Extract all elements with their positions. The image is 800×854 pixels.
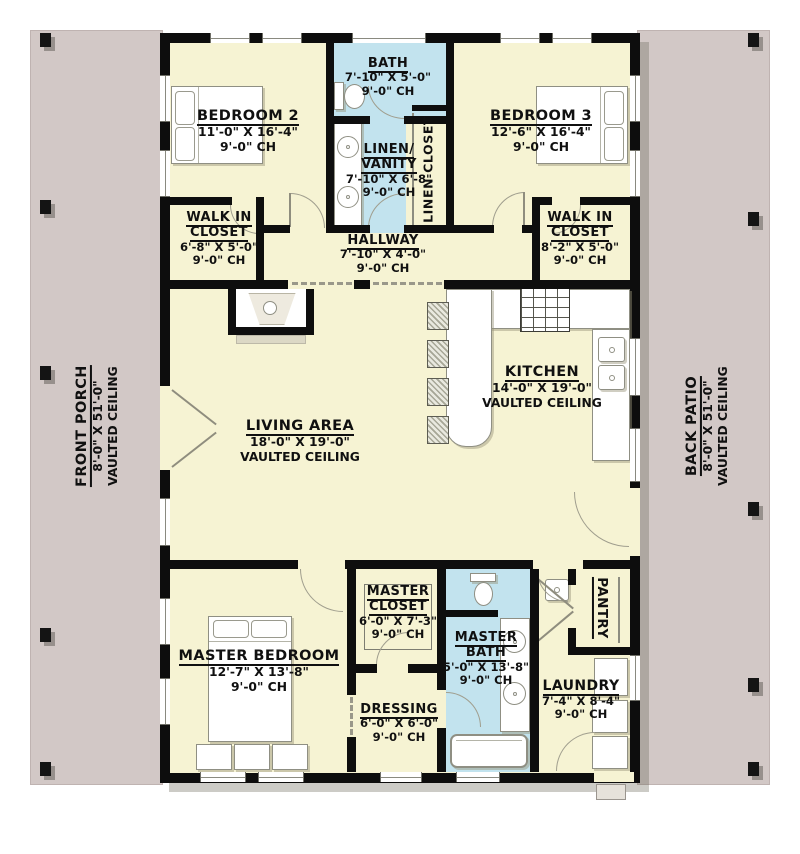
porch-post xyxy=(40,762,51,776)
bar-stool xyxy=(427,302,449,330)
label-wic-left: WALK IN CLOSET 6'-8" X 5'-0" 9'-0" CH xyxy=(166,210,272,268)
porch-post xyxy=(40,33,51,47)
label-bedroom2: BEDROOM 2 11'-0" X 16'-4" 9'-0" CH xyxy=(168,108,328,154)
label-living: LIVING AREA 18'-0" X 19'-0" VAULTED CEIL… xyxy=(205,418,395,464)
laundry-door-opening xyxy=(594,772,634,782)
window xyxy=(200,772,246,782)
bed-bench xyxy=(196,744,232,770)
fireplace xyxy=(236,289,306,327)
bed-bench xyxy=(234,744,270,770)
label-master-bedroom: MASTER BEDROOM 12'-7" X 13'-8" 9'-0" CH xyxy=(166,648,352,694)
wall xyxy=(170,280,288,289)
door-leaf xyxy=(289,193,291,227)
label-wic-right: WALK IN CLOSET 8'-2" X 5'-0" 9'-0" CH xyxy=(526,210,634,268)
wall xyxy=(568,569,576,585)
window xyxy=(210,33,250,43)
wall xyxy=(170,197,232,205)
hearth xyxy=(236,335,306,344)
patio-post xyxy=(748,762,759,776)
range-cooktop xyxy=(520,286,570,332)
window xyxy=(160,498,170,546)
window xyxy=(630,150,640,197)
window xyxy=(160,150,170,197)
label-dressing: DRESSING 6'-0" X 6'-0" 9'-0" CH xyxy=(350,702,448,745)
label-front-porch: FRONT PORCH 8'-0" X 51'-0" VAULTED CEILI… xyxy=(74,351,120,501)
porch-post xyxy=(40,200,51,214)
window xyxy=(500,33,540,43)
window xyxy=(630,428,640,482)
label-pantry: PANTRY xyxy=(593,566,609,650)
wall xyxy=(326,225,370,233)
label-master-bath: MASTER BATH 5'-0" X 13'-8" 9'-0" CH xyxy=(436,630,536,688)
window xyxy=(630,75,640,122)
wall xyxy=(580,197,630,205)
floor-plan: FRONT PORCH 8'-0" X 51'-0" VAULTED CEILI… xyxy=(0,0,800,854)
wall xyxy=(446,43,454,233)
wall xyxy=(444,280,630,289)
patio-post xyxy=(748,33,759,47)
label-bath: BATH 7'-10" X 5'-0" 9'-0" CH xyxy=(330,56,446,99)
back-door-opening xyxy=(630,488,640,556)
bar-stool xyxy=(427,378,449,406)
wall xyxy=(170,560,298,569)
label-back-patio: BACK PATIO 8'-0" X 51'-0" VAULTED CEILIN… xyxy=(684,351,730,501)
window xyxy=(380,772,422,782)
label-linen-closet: LINEN CLOSET xyxy=(422,109,437,229)
window xyxy=(456,772,500,782)
label-laundry: LAUNDRY 7'-4" X 8'-4" 9'-0" CH xyxy=(524,678,638,722)
bar-stool xyxy=(427,416,449,444)
wall xyxy=(345,560,533,569)
toilet-tank xyxy=(470,573,496,582)
pantry-shelf-line xyxy=(618,577,620,643)
kitchen-sink xyxy=(598,337,625,362)
door-leaf xyxy=(523,192,525,226)
label-master-closet: MASTER CLOSET 6'-0" X 7'-3" 9'-0" CH xyxy=(350,584,446,642)
patio-post xyxy=(748,678,759,692)
bar-stool xyxy=(427,340,449,368)
window xyxy=(258,772,304,782)
window xyxy=(262,33,302,43)
exterior-step xyxy=(596,784,626,800)
entry-door-opening xyxy=(160,386,170,470)
window xyxy=(552,33,592,43)
window xyxy=(160,598,170,645)
bathtub xyxy=(450,734,528,768)
wall xyxy=(326,116,370,124)
label-kitchen: KITCHEN 14'-0" X 19'-0" VAULTED CEILING xyxy=(458,364,626,410)
wall xyxy=(540,197,552,205)
patio-post xyxy=(748,502,759,516)
window xyxy=(352,33,426,43)
wall xyxy=(354,280,370,289)
toilet-bowl xyxy=(474,582,493,606)
bath-partition xyxy=(446,610,498,617)
washer xyxy=(592,736,628,769)
porch-post xyxy=(40,628,51,642)
patio-post xyxy=(748,212,759,226)
wall xyxy=(454,225,494,233)
bed-bench xyxy=(272,744,308,770)
window xyxy=(630,338,640,396)
porch-post xyxy=(40,366,51,380)
label-bedroom3: BEDROOM 3 12'-6" X 16'-4" 9'-0" CH xyxy=(456,108,626,154)
label-hallway: HALLWAY 7'-10" X 4'-0" 9'-0" CH xyxy=(308,233,458,276)
